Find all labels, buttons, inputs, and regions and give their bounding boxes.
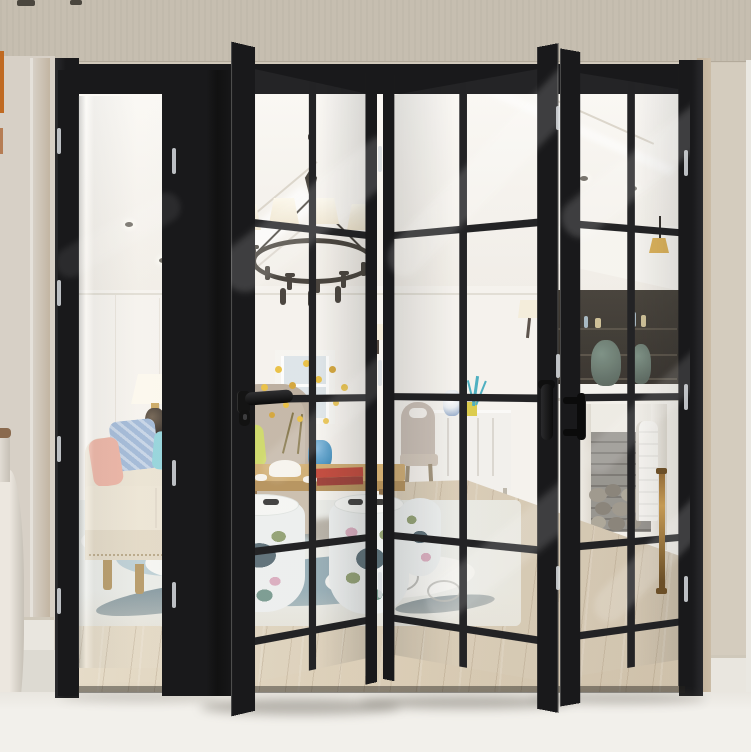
keyhole <box>243 414 247 420</box>
hinge-pin <box>172 582 176 608</box>
panel-glass <box>78 96 162 668</box>
ceiling-mark-1 <box>17 0 35 6</box>
brass-rod-bracket <box>656 588 667 594</box>
door-panel-1 <box>58 70 236 696</box>
hinge-pin <box>556 566 560 590</box>
wall-upper-band <box>0 0 751 62</box>
panel-left-stile <box>383 75 394 681</box>
panel-left-stile <box>231 42 255 717</box>
hinge-pin <box>378 572 382 598</box>
hinge-pin <box>684 384 688 410</box>
hinge-pin <box>684 576 688 602</box>
hinge-pin <box>57 280 61 306</box>
hinge-pin <box>556 106 560 130</box>
orange-accent <box>0 51 4 113</box>
panel-left-stile <box>58 70 78 696</box>
fold-handle <box>541 384 553 440</box>
hinge-pin <box>684 150 688 176</box>
hinge-pin <box>172 460 176 486</box>
door-panel-2 <box>231 42 377 717</box>
hinge-pin <box>378 360 382 386</box>
orange-accent-2 <box>0 128 3 154</box>
door-panel-3 <box>383 43 558 713</box>
hinge-pin <box>378 146 382 172</box>
floor-vase-rim <box>0 428 11 438</box>
right-pilaster <box>746 60 751 752</box>
hinge-pin <box>172 148 176 174</box>
hinge-pin <box>57 436 61 462</box>
hinge-pin <box>57 128 61 154</box>
left-trim-shadow <box>33 58 50 656</box>
hinge-pin <box>57 588 61 614</box>
right-baseboard <box>711 655 751 693</box>
door-panel-4 <box>560 48 690 706</box>
ceiling-mark-2 <box>70 0 82 5</box>
floor-vase-neck <box>0 432 10 482</box>
brass-rod-handle <box>659 468 665 594</box>
hinge-pin <box>556 354 560 378</box>
brass-rod-bracket <box>656 468 667 474</box>
panel-left-stile <box>560 48 580 706</box>
d-pull-bar <box>577 393 586 440</box>
product-photo-bifold-door <box>0 0 751 752</box>
